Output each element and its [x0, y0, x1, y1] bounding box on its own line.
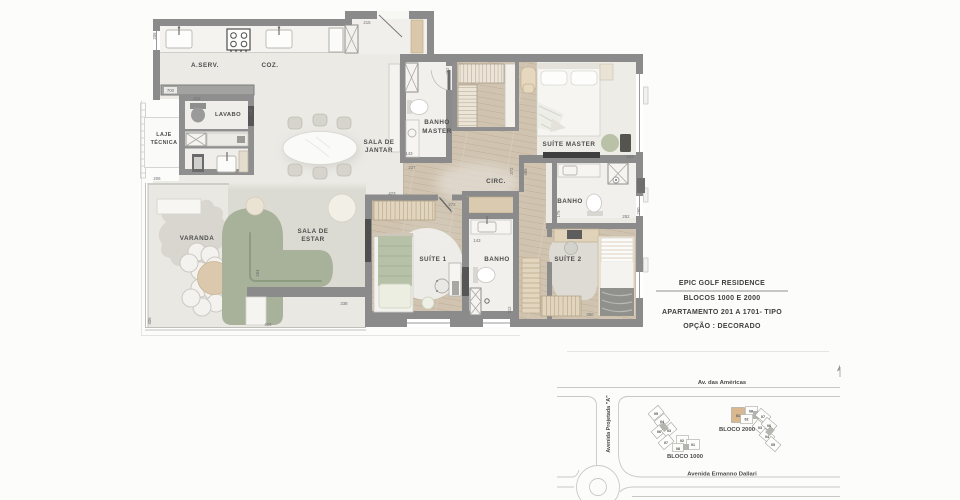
svg-text:A.SERV.: A.SERV.: [191, 62, 219, 69]
svg-text:252: 252: [622, 214, 630, 219]
svg-text:MASTER: MASTER: [422, 128, 452, 135]
svg-text:TÉCNICA: TÉCNICA: [151, 138, 178, 146]
svg-text:140: 140: [248, 108, 253, 116]
svg-text:04: 04: [765, 435, 769, 439]
svg-text:01: 01: [736, 414, 740, 418]
svg-text:OPÇÃO : DECORADO: OPÇÃO : DECORADO: [683, 321, 761, 330]
svg-text:CIRC.: CIRC.: [486, 178, 506, 185]
svg-text:ESTAR: ESTAR: [301, 236, 324, 243]
svg-text:BANHO: BANHO: [484, 256, 510, 263]
svg-text:06: 06: [767, 424, 771, 428]
svg-text:272: 272: [448, 202, 456, 207]
svg-text:VARANDA: VARANDA: [180, 235, 215, 242]
svg-text:APARTAMENTO 201 A 1701- TIPO: APARTAMENTO 201 A 1701- TIPO: [662, 309, 782, 316]
svg-text:BLOCO 2000: BLOCO 2000: [719, 427, 756, 433]
svg-text:07: 07: [664, 441, 668, 445]
svg-text:LAJE: LAJE: [156, 132, 171, 138]
svg-text:01: 01: [691, 443, 695, 447]
svg-text:SUÍTE 1: SUÍTE 1: [419, 254, 446, 263]
svg-text:08: 08: [676, 447, 680, 451]
svg-text:SUÍTE 2: SUÍTE 2: [554, 254, 581, 263]
svg-text:05: 05: [654, 412, 658, 416]
svg-text:206: 206: [153, 176, 161, 181]
svg-text:BANHO: BANHO: [557, 198, 583, 205]
svg-text:BLOCOS 1000 E 2000: BLOCOS 1000 E 2000: [684, 295, 761, 302]
svg-text:264: 264: [255, 269, 260, 277]
svg-text:08: 08: [749, 410, 753, 414]
svg-text:212: 212: [193, 96, 201, 101]
svg-text:406: 406: [147, 317, 152, 325]
svg-text:BANHO: BANHO: [424, 119, 450, 126]
svg-text:262: 262: [445, 67, 450, 75]
svg-text:Av. das Américas: Av. das Américas: [698, 380, 747, 386]
svg-text:486: 486: [523, 168, 528, 176]
svg-text:SALA DE: SALA DE: [298, 228, 329, 235]
svg-text:312: 312: [507, 306, 512, 314]
svg-text:208: 208: [152, 32, 157, 40]
svg-text:EPIC GOLF RESIDENCE: EPIC GOLF RESIDENCE: [679, 280, 765, 287]
svg-text:JANTAR: JANTAR: [365, 147, 393, 154]
svg-text:350: 350: [586, 312, 594, 317]
svg-text:03: 03: [667, 429, 671, 433]
svg-text:BLOCO 1000: BLOCO 1000: [667, 454, 704, 460]
svg-text:215: 215: [363, 20, 371, 25]
svg-text:372: 372: [509, 167, 514, 175]
svg-text:143: 143: [473, 238, 481, 243]
svg-text:02: 02: [680, 439, 684, 443]
svg-text:260: 260: [636, 207, 641, 215]
svg-text:700: 700: [167, 88, 175, 93]
svg-text:143: 143: [405, 151, 413, 156]
svg-text:Avenida Projetada "A": Avenida Projetada "A": [606, 395, 612, 453]
svg-text:423: 423: [388, 191, 396, 196]
svg-text:424: 424: [264, 322, 272, 327]
svg-text:COZ.: COZ.: [261, 62, 278, 69]
svg-text:02: 02: [745, 418, 749, 422]
svg-text:Avenida Ermanno Dallari: Avenida Ermanno Dallari: [687, 472, 757, 478]
svg-text:04: 04: [660, 420, 664, 424]
svg-text:533: 533: [626, 154, 634, 159]
svg-text:SUÍTE MASTER: SUÍTE MASTER: [543, 139, 596, 148]
svg-text:07: 07: [761, 415, 765, 419]
svg-text:05: 05: [771, 443, 775, 447]
svg-text:227: 227: [408, 165, 416, 170]
svg-text:SALA DE: SALA DE: [364, 139, 395, 146]
svg-text:06: 06: [657, 430, 661, 434]
svg-text:03: 03: [758, 426, 762, 430]
svg-text:LAVABO: LAVABO: [215, 112, 241, 118]
svg-text:175: 175: [556, 210, 561, 218]
svg-text:338: 338: [340, 301, 348, 306]
